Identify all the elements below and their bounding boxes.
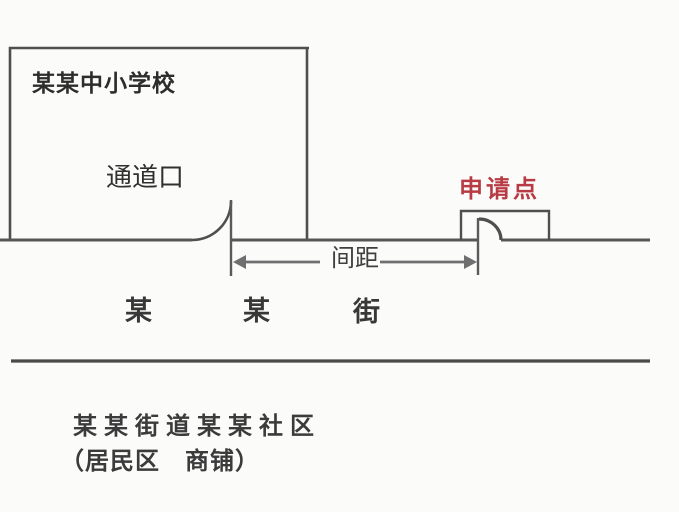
shop-outline [461, 211, 549, 240]
school-gate-swing-arc [192, 201, 231, 240]
distance-label: 间距 [331, 245, 379, 271]
community-detail-label: （居民区 商铺） [60, 448, 260, 474]
street-name-char-1: 某 [125, 297, 152, 327]
street-name-char-2: 某 [243, 297, 270, 327]
community-name-label: 某某街道某某社区 [73, 413, 321, 439]
gate-label: 通道口 [106, 164, 184, 193]
shop-door-swing-arc [479, 219, 501, 240]
school-name-label: 某某中小学校 [32, 72, 176, 97]
distance-arrow-head-right-icon [464, 255, 477, 269]
distance-arrow-head-left-icon [233, 255, 246, 269]
site-sketch-diagram: 某某中小学校 通道口 申请点 间距 某 某 街 某某街道某某社区 （居民区 商铺… [0, 0, 679, 512]
street-name-char-3: 街 [353, 298, 380, 328]
applicant-point-label: 申请点 [459, 176, 540, 202]
